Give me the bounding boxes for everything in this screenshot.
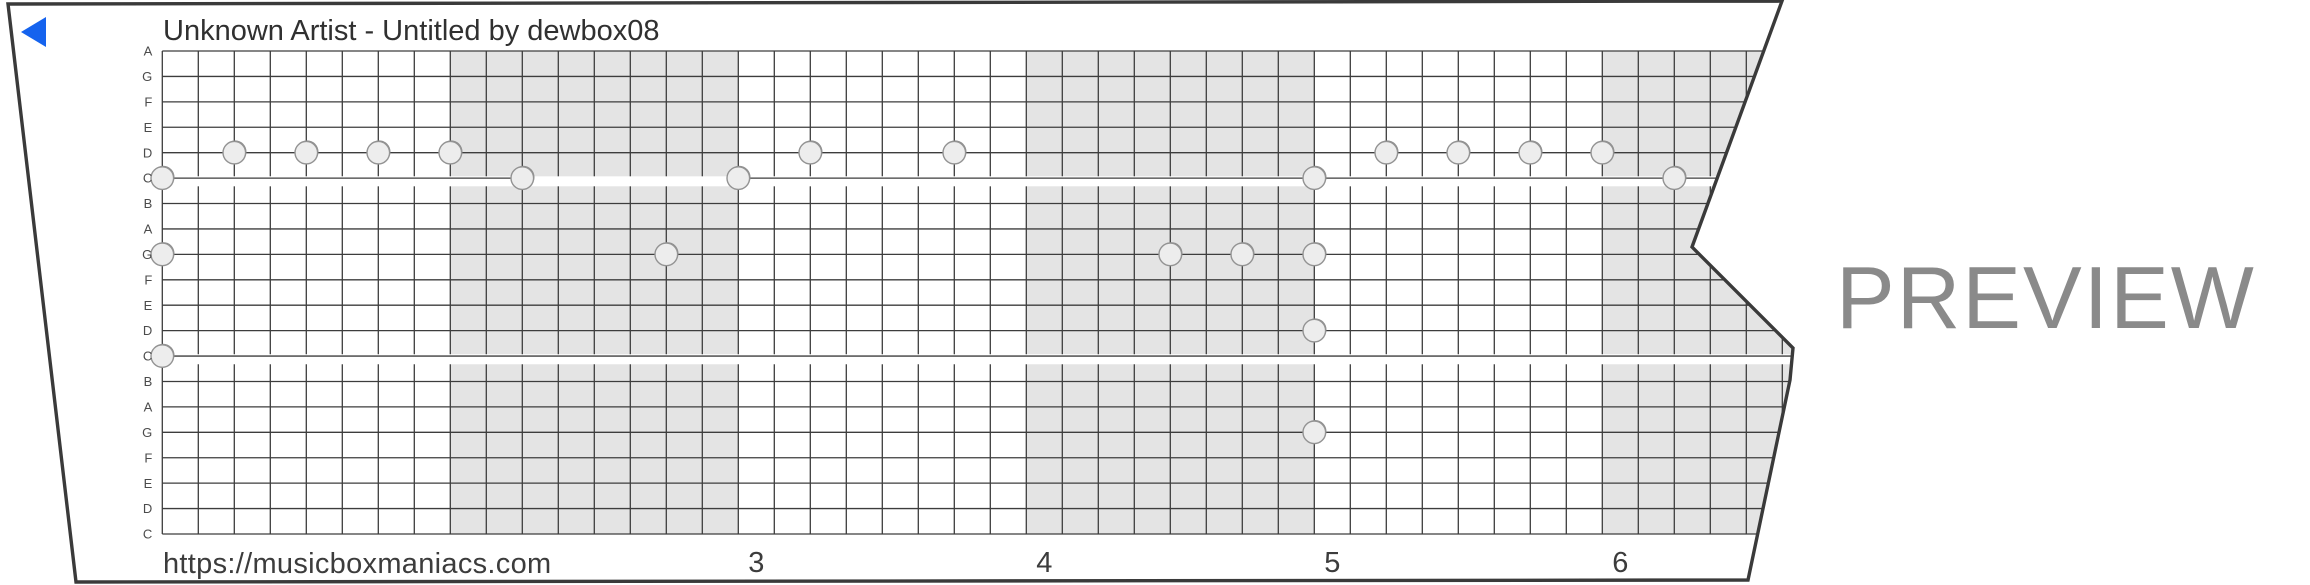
note-marker	[151, 243, 174, 266]
row-label: B	[144, 374, 153, 389]
note-marker	[367, 141, 390, 164]
measure-number: 3	[748, 547, 764, 579]
row-label: F	[144, 450, 152, 465]
row-label: E	[144, 120, 153, 135]
row-label: D	[143, 145, 152, 160]
note-marker	[655, 243, 678, 266]
note-marker	[943, 141, 966, 164]
row-label: C	[143, 527, 152, 542]
row-label: A	[144, 399, 153, 414]
note-marker	[1303, 421, 1326, 444]
preview-watermark: PREVIEW	[1836, 247, 2256, 349]
note-marker	[1231, 243, 1254, 266]
melody-preview-card[interactable]: AGFEDCBAGFEDCBAGFEDC 3456 Unknown Artist…	[0, 0, 2310, 585]
measure-number: 6	[1612, 547, 1628, 579]
row-label: F	[144, 94, 152, 109]
measure-number: 4	[1036, 547, 1052, 579]
note-marker	[295, 141, 318, 164]
row-label: C	[143, 349, 152, 364]
row-label: A	[144, 222, 153, 237]
note-marker	[439, 141, 462, 164]
row-label: D	[143, 501, 152, 516]
note-marker	[1303, 243, 1326, 266]
row-label: E	[144, 298, 153, 313]
note-marker	[1303, 167, 1326, 190]
row-label: C	[143, 171, 152, 186]
row-label: D	[143, 323, 152, 338]
row-label: A	[144, 44, 153, 59]
row-label: E	[144, 476, 153, 491]
note-marker	[511, 167, 534, 190]
note-marker	[1159, 243, 1182, 266]
melody-title: Unknown Artist - Untitled by dewbox08	[163, 15, 659, 48]
row-label: B	[144, 196, 153, 211]
note-marker	[1663, 167, 1686, 190]
note-marker	[151, 345, 174, 368]
row-label: G	[142, 247, 152, 262]
row-label: G	[142, 69, 152, 84]
note-marker	[1303, 319, 1326, 342]
note-marker	[223, 141, 246, 164]
play-arrow-icon	[21, 17, 46, 47]
note-marker	[1519, 141, 1542, 164]
note-marker	[1591, 141, 1614, 164]
note-marker	[727, 167, 750, 190]
measure-number: 5	[1324, 547, 1340, 579]
footer-url: https://musicboxmaniacs.com	[163, 548, 551, 581]
note-marker	[799, 141, 822, 164]
note-marker	[1447, 141, 1470, 164]
row-label: G	[142, 425, 152, 440]
note-marker	[1375, 141, 1398, 164]
note-marker	[151, 167, 174, 190]
row-label: F	[144, 272, 152, 287]
strip-paper	[8, 1, 1793, 582]
